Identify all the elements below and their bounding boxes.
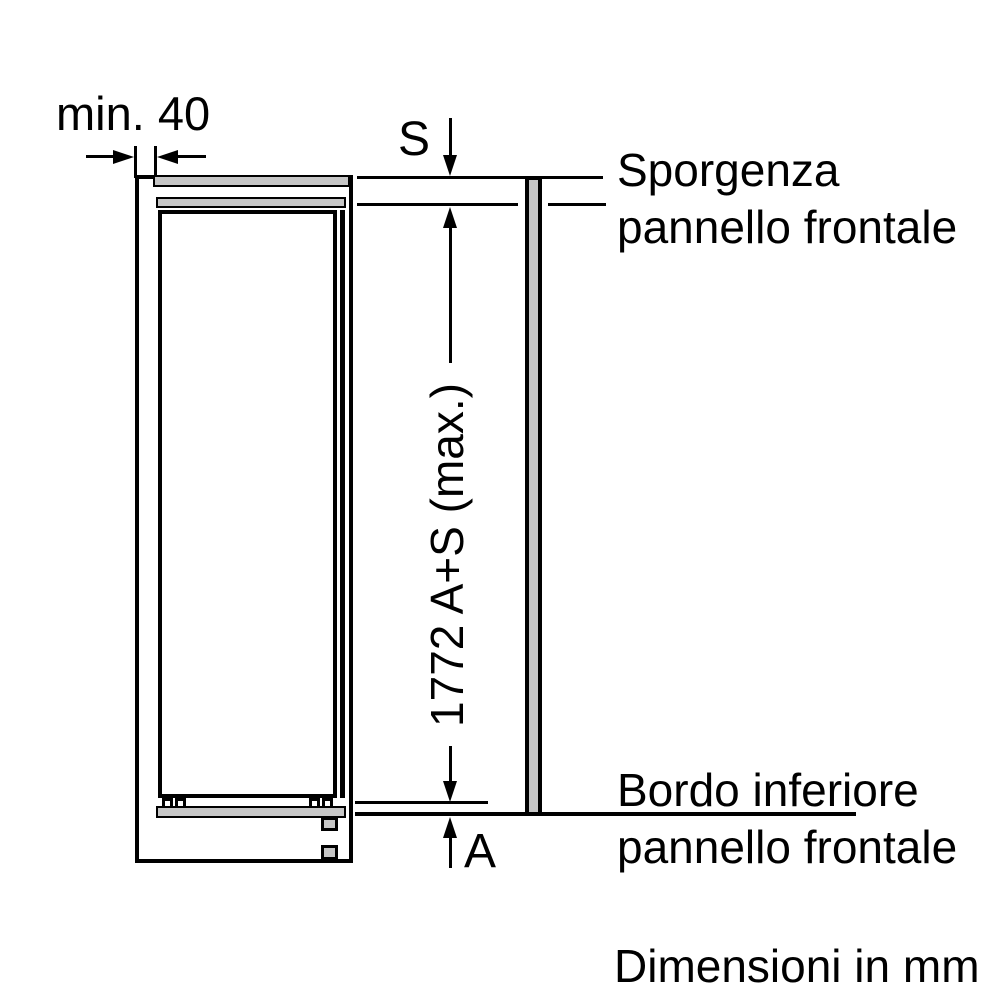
bottom-panel-annotation-line2: pannello frontale bbox=[617, 819, 957, 876]
mounting-bracket bbox=[321, 817, 338, 831]
min-gap-dimension-label: min. 40 bbox=[56, 90, 210, 138]
appliance-body bbox=[158, 210, 337, 798]
protrusion-arrow-shaft bbox=[449, 118, 452, 158]
bottom-panel-annotation: Bordo inferiore pannello frontale bbox=[617, 762, 957, 876]
min-gap-extension-line-left bbox=[134, 146, 137, 178]
bottom-distance-arrow-shaft bbox=[449, 836, 452, 868]
extension-line-panel-top bbox=[357, 176, 603, 179]
front-panel bbox=[525, 176, 542, 816]
bottom-panel-annotation-line1: Bordo inferiore bbox=[617, 762, 957, 819]
extension-line-appliance-top-right bbox=[548, 203, 606, 206]
height-dimension-line-upper bbox=[449, 226, 452, 363]
height-dimension-line-lower bbox=[449, 746, 452, 782]
min-gap-left-arrowhead-icon bbox=[113, 150, 134, 164]
extension-line-appliance-bottom bbox=[355, 801, 488, 804]
installation-diagram-canvas: min. 40 S 1772 A+S (max.) A Sporgenza pa… bbox=[0, 0, 1000, 1000]
top-panel-annotation: Sporgenza pannello frontale bbox=[617, 142, 957, 256]
mounting-bracket bbox=[321, 845, 338, 860]
protrusion-arrowhead-icon bbox=[443, 155, 457, 176]
appliance-door-line bbox=[340, 210, 345, 798]
height-dimension-top-arrowhead-icon bbox=[443, 207, 457, 228]
top-trim-strip bbox=[153, 175, 350, 187]
plinth-strip bbox=[156, 806, 346, 818]
top-panel-annotation-line2: pannello frontale bbox=[617, 199, 957, 256]
min-gap-left-arrow-shaft bbox=[86, 155, 115, 158]
min-gap-extension-line-right bbox=[154, 146, 157, 178]
bottom-distance-arrowhead-icon bbox=[443, 817, 457, 838]
min-gap-right-arrowhead-icon bbox=[157, 150, 178, 164]
height-dimension-bottom-arrowhead-icon bbox=[443, 781, 457, 802]
units-note: Dimensioni in mm bbox=[614, 938, 980, 995]
height-dimension-label: 1772 A+S (max.) bbox=[423, 355, 471, 755]
min-gap-right-arrow-shaft bbox=[178, 155, 206, 158]
bottom-distance-dimension-label: A bbox=[464, 828, 496, 876]
extension-line-appliance-top-left bbox=[357, 203, 518, 206]
door-top-strip bbox=[156, 197, 346, 208]
protrusion-dimension-label: S bbox=[398, 116, 430, 164]
top-panel-annotation-line1: Sporgenza bbox=[617, 142, 957, 199]
